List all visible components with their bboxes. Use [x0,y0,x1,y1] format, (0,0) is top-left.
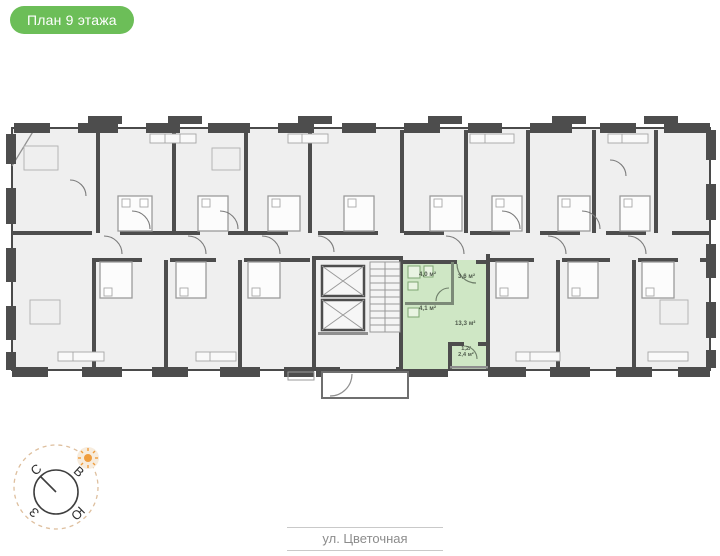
lobby-wall [318,332,368,335]
area-label-hall: 3,6 м² [458,274,475,280]
area-label-kitchen: 4,1 м² [419,306,436,312]
elevator-icon [322,300,364,330]
area-label-living: 13,3 м² [455,321,475,327]
balcony-area-full: 2,4 м² [450,352,482,358]
elevator-icon [322,266,364,296]
entrance-vestibule [322,372,408,398]
area-label-bathroom: 4,0 м² [419,272,436,278]
floor-plan [0,0,720,556]
street-label: ул. Цветочная [287,527,443,551]
floor-plan-badge: План 9 этажа [10,6,134,34]
staircase [370,262,400,332]
area-label-balcony: 1,2/ 2,4 м² [450,346,482,359]
